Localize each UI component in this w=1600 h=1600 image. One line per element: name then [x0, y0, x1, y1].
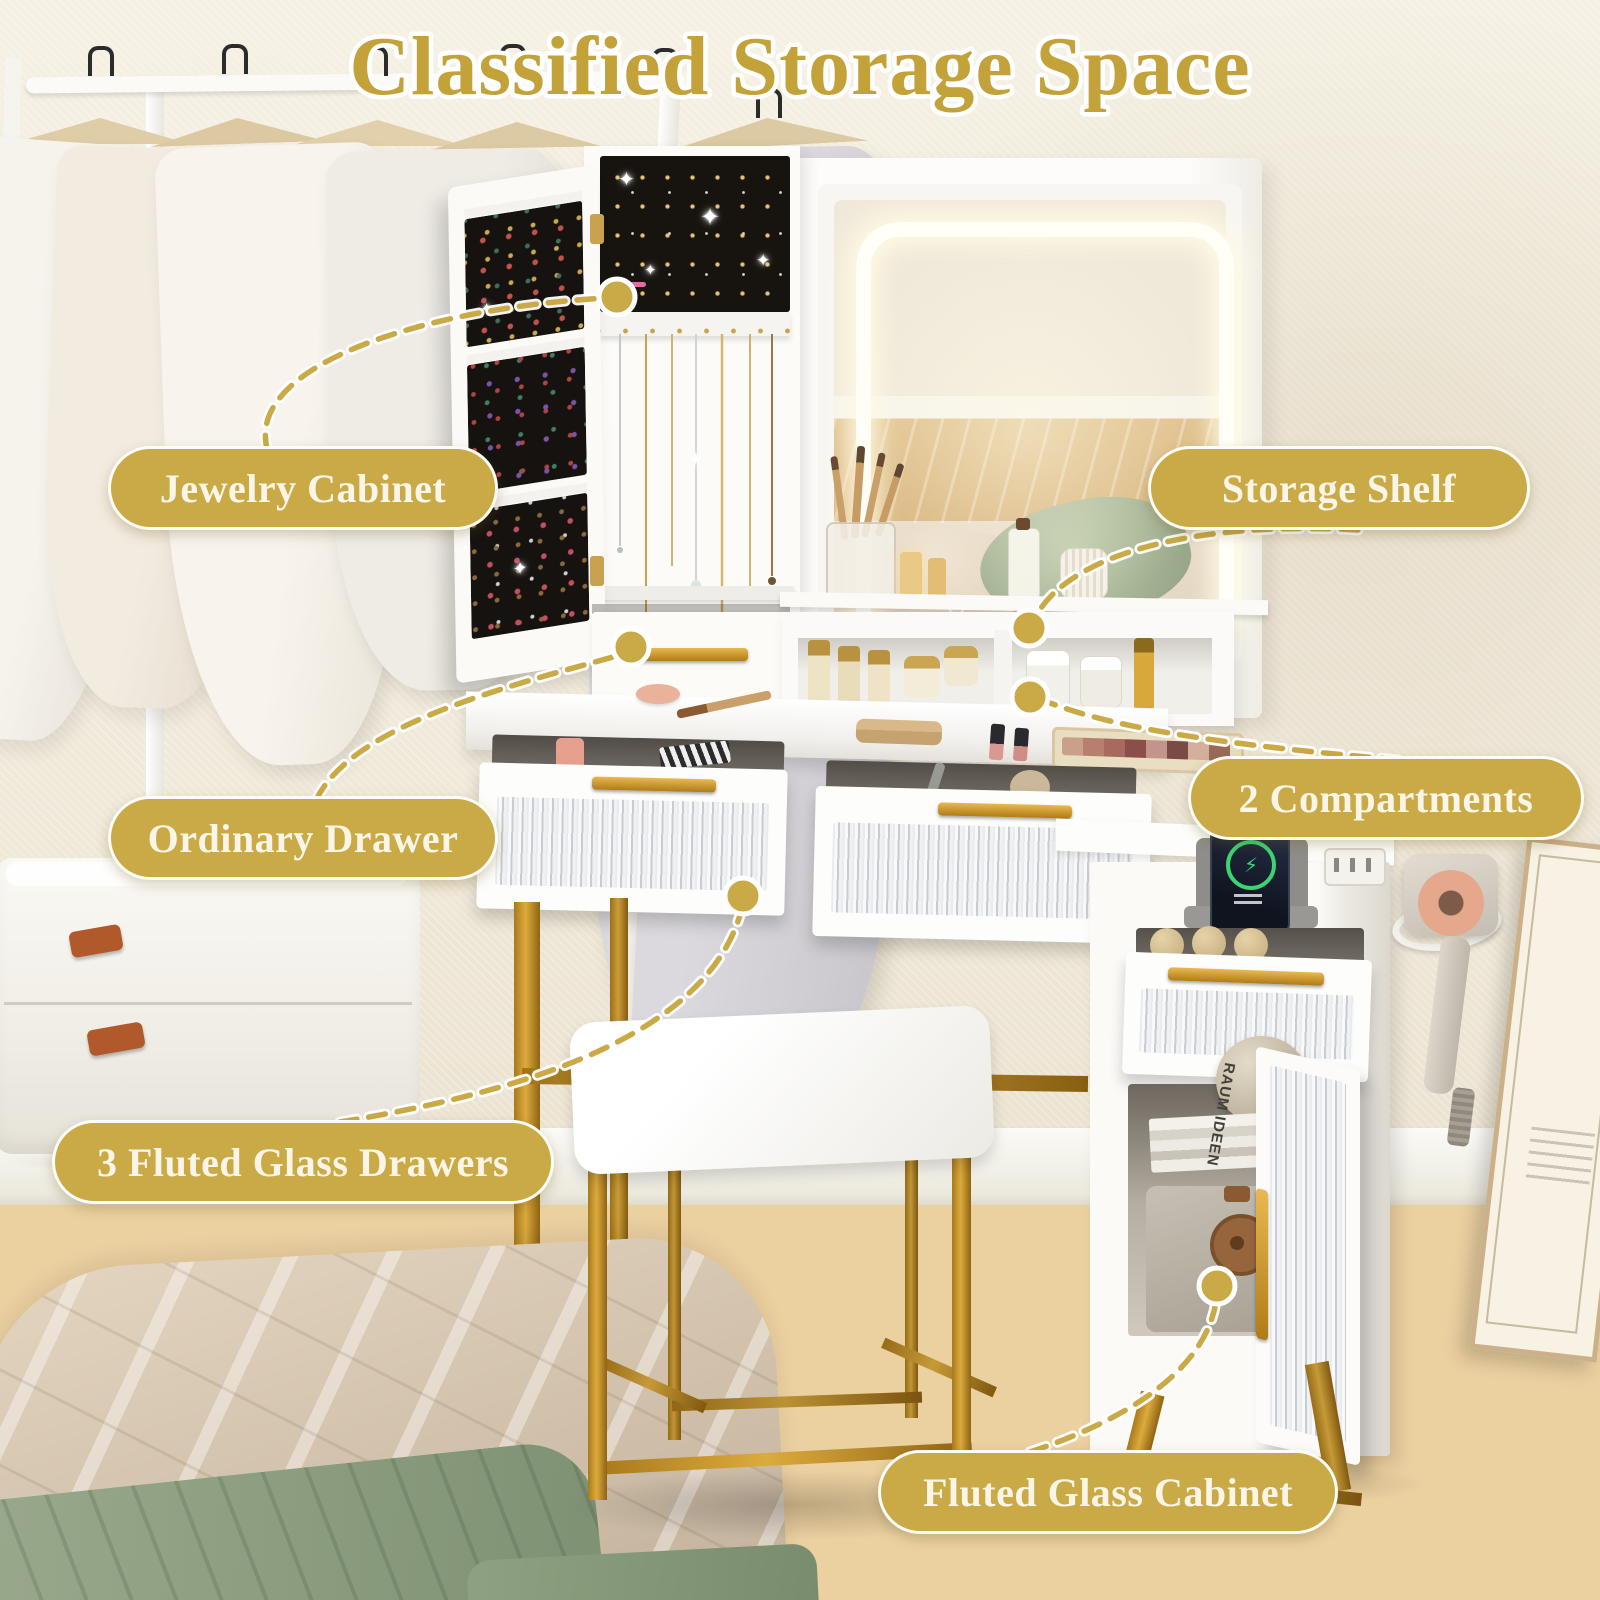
picture-frame-text-lines [1525, 1127, 1595, 1194]
earring-panel [464, 201, 584, 348]
cream-jar-gold [904, 656, 940, 698]
callout-label: Fluted Glass Cabinet [923, 1469, 1293, 1516]
callout-ordinary-drawer: Ordinary Drawer [108, 796, 498, 880]
cream-jar-gold [944, 646, 978, 686]
makeup-brush-cup [826, 522, 896, 602]
sparkle-icon: ✦ [756, 252, 770, 269]
fluted-cabinet-door [1256, 1046, 1360, 1466]
jewelry-cabinet-door: ✦ ✦ [448, 164, 606, 684]
lightning-icon: ⚡ [1244, 853, 1258, 877]
lipstick [989, 724, 1005, 761]
phone-screen-text-lines [1234, 894, 1262, 904]
page-title: Classified Storage Space [0, 0, 1600, 140]
sparkle-icon: ✦ [512, 558, 527, 578]
dresser-drawer-seam [4, 1002, 412, 1005]
stool-cushion [569, 1005, 995, 1175]
door-edge-handle [1256, 1188, 1268, 1341]
product-image: ✦ ✦ ✦ ✦ ✦ ✦ ✦ [0, 0, 1600, 1600]
stool-front-leg [952, 1128, 971, 1490]
amber-bottle [928, 558, 946, 598]
stool-front-leg [588, 1148, 607, 1500]
callout-label: Jewelry Cabinet [160, 465, 446, 512]
cream-jar-white [1080, 656, 1122, 708]
jewelry-cabinet-shelf [590, 586, 794, 600]
perfume-bottle-ribbed [1060, 548, 1108, 600]
callout-fluted-glass-cabinet: Fluted Glass Cabinet [878, 1450, 1338, 1534]
serum-bottle-gold [1134, 638, 1154, 710]
fluted-drawer-glass [495, 797, 769, 892]
hair-dryer-ring [1418, 870, 1484, 936]
stool-rear-leg [905, 1118, 918, 1418]
sparkle-icon: ✦ [700, 206, 720, 230]
page-title-text: Classified Storage Space [349, 20, 1250, 113]
amber-bottle [900, 552, 922, 598]
necklace-hook-rail [600, 312, 790, 336]
callout-storage-shelf: Storage Shelf [1148, 446, 1530, 530]
charging-ring: ⚡ [1226, 840, 1276, 890]
callout-label: 3 Fluted Glass Drawers [97, 1139, 509, 1186]
ordinary-drawer-handle [634, 648, 748, 661]
door-hinge [590, 214, 604, 244]
sparkle-icon: ✦ [688, 450, 703, 468]
wooden-comb [856, 719, 943, 746]
callout-label: 2 Compartments [1239, 775, 1534, 822]
door-hinge [590, 556, 604, 586]
perfume-bottle [1008, 528, 1040, 600]
sparkle-icon: ✦ [644, 264, 657, 279]
callout-label: Storage Shelf [1222, 465, 1456, 512]
lipstick [1013, 728, 1029, 762]
sparkle-icon: ✦ [480, 301, 494, 319]
jewelry-pink-ring [624, 282, 646, 287]
blush-compact [636, 684, 680, 704]
callout-jewelry-cabinet: Jewelry Cabinet [108, 446, 498, 530]
sparkle-icon: ✦ [618, 170, 635, 190]
storage-case-strap [1224, 1186, 1250, 1202]
cream-jar-white [1026, 650, 1070, 708]
storage-case-medallion-hole [1230, 1236, 1244, 1250]
power-outlet-sockets [1334, 858, 1372, 872]
dresser [0, 858, 420, 1154]
callout-two-compartments: 2 Compartments [1188, 756, 1584, 840]
perfume-bottle-cap [1016, 518, 1030, 530]
callout-three-fluted-glass-drawers: 3 Fluted Glass Drawers [52, 1120, 554, 1204]
callout-label: Ordinary Drawer [148, 815, 459, 862]
